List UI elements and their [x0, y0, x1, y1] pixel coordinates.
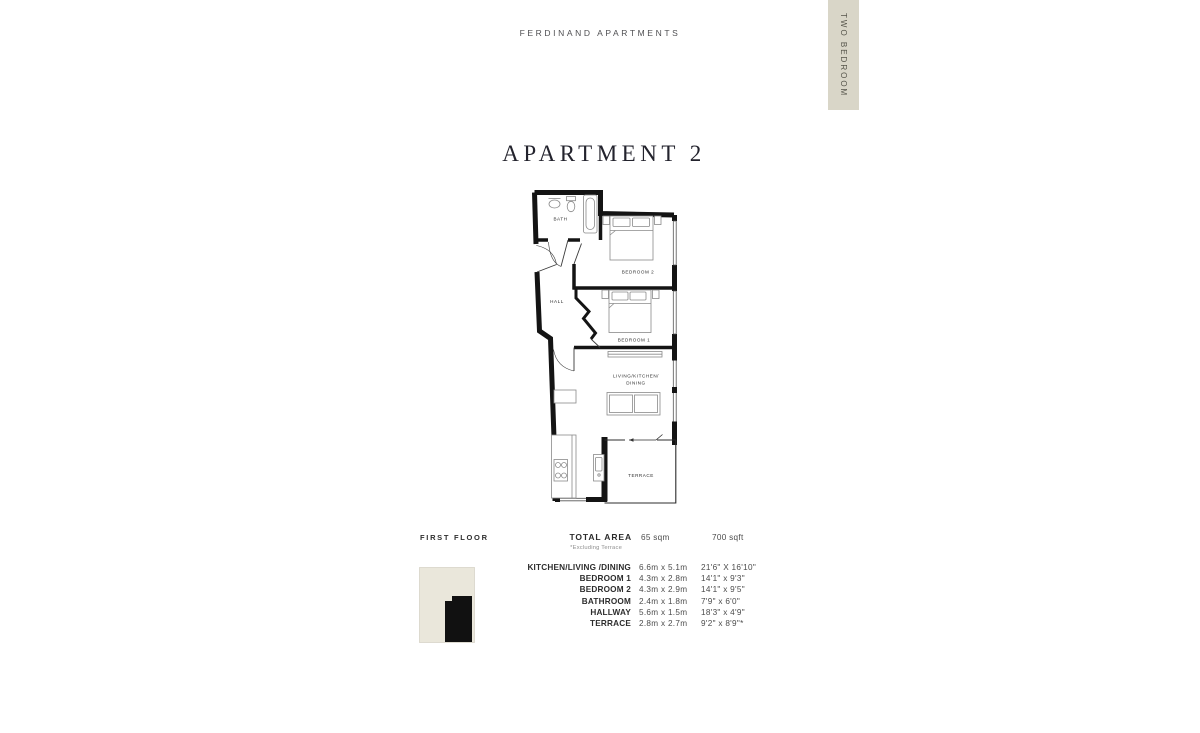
- hall-label: HALL: [550, 299, 564, 304]
- room-name: HALLWAY: [440, 608, 631, 617]
- toilet-icon: [567, 197, 576, 201]
- nightstand-icon: [603, 216, 610, 225]
- table-row: BATHROOM 2.4m x 1.8m 7'9" x 6'0": [440, 597, 756, 608]
- total-area-note: *Excluding Terrace: [440, 545, 622, 551]
- nightstand-icon: [602, 290, 609, 299]
- room-name: BEDROOM 1: [440, 574, 631, 583]
- sideboard-icon: [554, 390, 576, 403]
- bath-label: BATH: [553, 217, 567, 222]
- table-row: KITCHEN/LIVING /DINING 6.6m x 5.1m 21'6"…: [440, 563, 756, 574]
- table-row: TERRACE 2.8m x 2.7m 9'2" x 8'9"*: [440, 619, 756, 630]
- room-imperial: 14'1" x 9'5": [701, 585, 745, 594]
- room-imperial: 9'2" x 8'9"*: [701, 619, 744, 628]
- room-name: BEDROOM 2: [440, 585, 631, 594]
- room-metric: 5.6m x 1.5m: [639, 608, 701, 617]
- room-metric: 4.3m x 2.8m: [639, 574, 701, 583]
- room-metric: 2.8m x 2.7m: [639, 619, 701, 628]
- bedroom1-label: BEDROOM 1: [618, 338, 651, 343]
- windows: [560, 221, 679, 503]
- total-area-metric: 65 sqm: [641, 533, 670, 542]
- room-name: BATHROOM: [440, 597, 631, 606]
- table-row: HALLWAY 5.6m x 1.5m 18'3" x 4'9": [440, 608, 756, 619]
- room-metric: 6.6m x 5.1m: [639, 563, 701, 572]
- nightstand-icon: [655, 216, 662, 225]
- interior-walls: [535, 213, 675, 348]
- doors: [536, 240, 600, 371]
- bath-door-arc: [549, 242, 562, 267]
- brochure-page: FERDINAND APARTMENTS TWO BEDROOM APARTME…: [0, 0, 1200, 733]
- bath-door-leaf: [561, 240, 568, 267]
- floor-plan-svg: BATH BEDROOM 2 HALL BEDROOM 1 LIVING/KIT…: [530, 188, 680, 510]
- bedroom2-label: BEDROOM 2: [622, 270, 655, 275]
- room-metric: 2.4m x 1.8m: [639, 597, 701, 606]
- living-label-line1: LIVING/KITCHEN/: [613, 374, 659, 379]
- room-imperial: 7'9" x 6'0": [701, 597, 740, 606]
- table-row: BEDROOM 1 4.3m x 2.8m 14'1" x 9'3": [440, 574, 756, 585]
- entry-door-arc: [536, 246, 556, 265]
- terrace-label: TERRACE: [628, 473, 654, 478]
- room-imperial: 21'6" X 16'10": [701, 563, 756, 572]
- living-door-arc: [554, 350, 575, 372]
- room-imperial: 18'3" x 4'9": [701, 608, 745, 617]
- total-area-imperial: 700 sqft: [712, 533, 744, 542]
- living-label-line2: DINING: [626, 381, 645, 386]
- terrace-walls: [605, 435, 676, 504]
- total-area-label: TOTAL AREA: [440, 532, 632, 542]
- slide-arrow-icon: [629, 438, 634, 442]
- tab-two-bedroom[interactable]: TWO BEDROOM: [828, 0, 859, 110]
- table-row: BEDROOM 2 4.3m x 2.9m 14'1" x 9'5": [440, 585, 756, 596]
- room-imperial: 14'1" x 9'3": [701, 574, 745, 583]
- room-name: KITCHEN/LIVING /DINING: [440, 563, 631, 572]
- entry-door-leaf: [537, 265, 557, 273]
- floor-plan: BATH BEDROOM 2 HALL BEDROOM 1 LIVING/KIT…: [530, 188, 680, 510]
- bedroom2-door-leaf: [574, 244, 582, 265]
- page-title: APARTMENT 2: [4, 141, 1200, 167]
- room-name: TERRACE: [440, 619, 631, 628]
- dimensions-table: KITCHEN/LIVING /DINING 6.6m x 5.1m 21'6"…: [440, 563, 756, 630]
- sink-icon: [549, 200, 560, 208]
- room-metric: 4.3m x 2.9m: [639, 585, 701, 594]
- brand-text: FERDINAND APARTMENTS: [0, 28, 1200, 38]
- nightstand-icon: [653, 290, 660, 299]
